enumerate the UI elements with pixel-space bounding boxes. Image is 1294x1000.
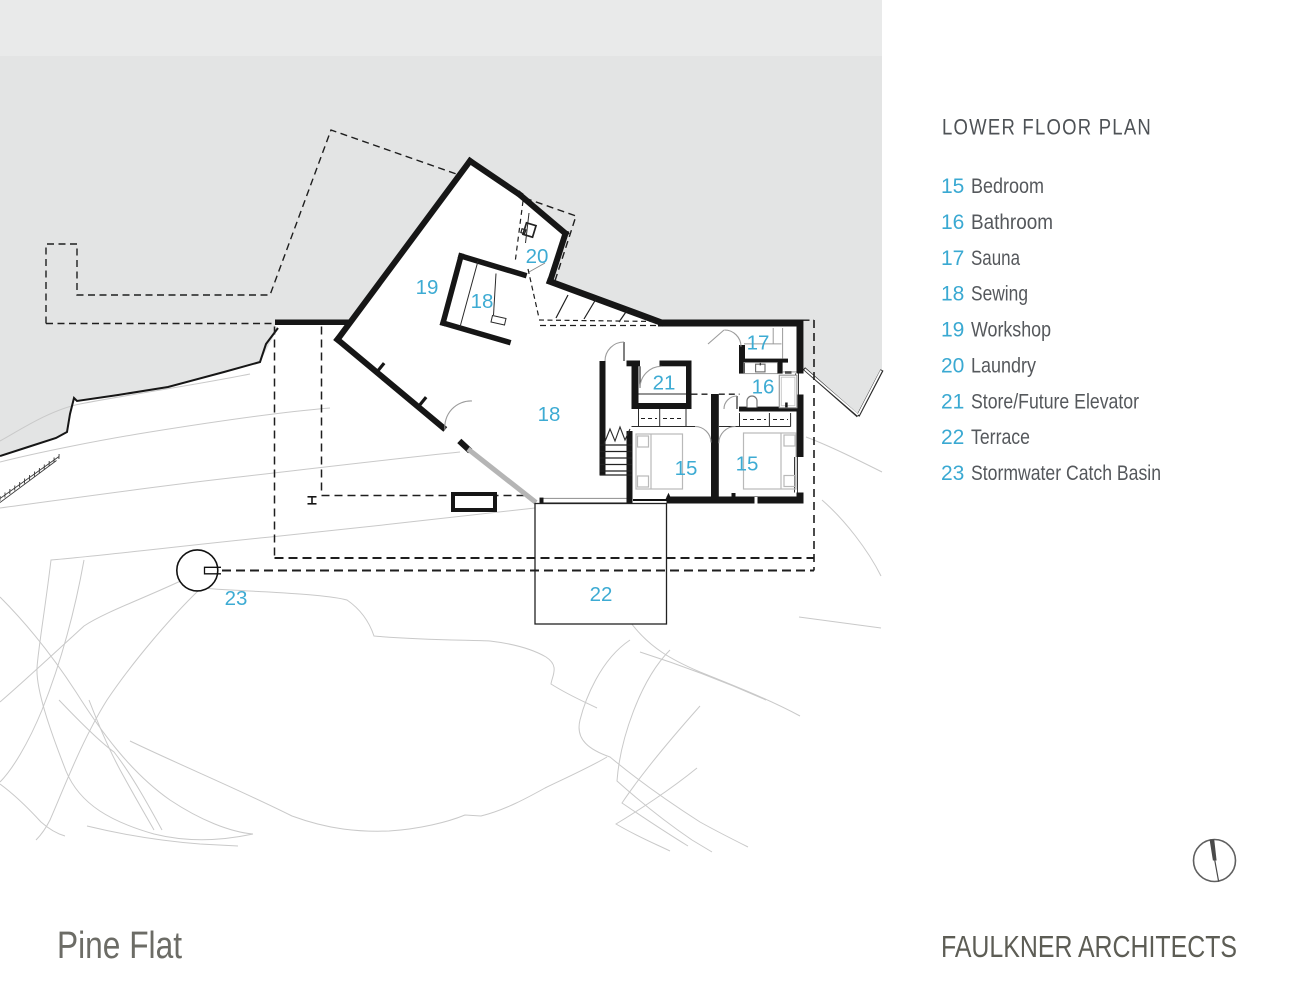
svg-text:17: 17 xyxy=(747,332,770,355)
svg-text:23: 23 xyxy=(225,587,248,610)
svg-text:21: 21 xyxy=(653,372,676,395)
svg-text:15: 15 xyxy=(675,457,698,480)
svg-text:19: 19 xyxy=(416,276,439,299)
svg-text:Workshop: Workshop xyxy=(971,319,1051,342)
svg-text:18: 18 xyxy=(471,290,494,313)
svg-text:Bedroom: Bedroom xyxy=(971,175,1044,198)
svg-text:20: 20 xyxy=(526,245,549,268)
svg-text:LOWER FLOOR PLAN: LOWER FLOOR PLAN xyxy=(942,115,1152,140)
svg-text:21: 21 xyxy=(941,390,964,413)
svg-text:Pine Flat: Pine Flat xyxy=(57,925,182,967)
svg-text:Terrace: Terrace xyxy=(971,426,1030,449)
svg-text:15: 15 xyxy=(736,453,759,476)
svg-text:Stormwater Catch Basin: Stormwater Catch Basin xyxy=(971,462,1161,485)
svg-text:23: 23 xyxy=(941,462,964,485)
svg-text:FAULKNER ARCHITECTS: FAULKNER ARCHITECTS xyxy=(941,929,1237,964)
svg-text:15: 15 xyxy=(941,175,964,198)
svg-text:16: 16 xyxy=(941,211,964,234)
svg-text:22: 22 xyxy=(590,583,613,606)
svg-text:20: 20 xyxy=(941,354,964,377)
svg-text:Sauna: Sauna xyxy=(971,247,1020,270)
svg-text:18: 18 xyxy=(538,403,561,426)
svg-text:22: 22 xyxy=(941,426,964,449)
svg-text:Sewing: Sewing xyxy=(971,283,1028,306)
svg-text:17: 17 xyxy=(941,247,964,270)
svg-text:19: 19 xyxy=(941,319,964,342)
svg-text:Bathroom: Bathroom xyxy=(971,211,1053,234)
svg-text:16: 16 xyxy=(752,376,775,399)
svg-text:Laundry: Laundry xyxy=(971,354,1036,377)
svg-text:Store/Future Elevator: Store/Future Elevator xyxy=(971,390,1139,413)
svg-text:18: 18 xyxy=(941,283,964,306)
